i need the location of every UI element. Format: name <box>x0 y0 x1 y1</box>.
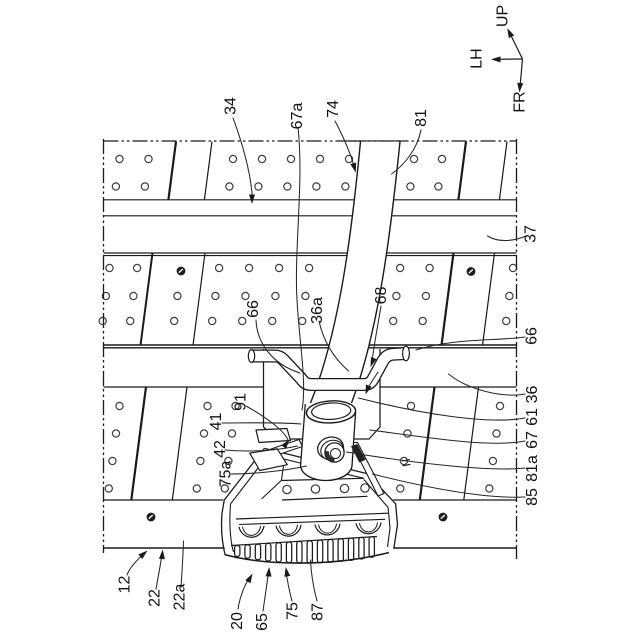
svg-text:75a: 75a <box>218 461 235 488</box>
svg-text:22a: 22a <box>172 584 189 611</box>
svg-text:87: 87 <box>310 603 327 621</box>
svg-text:66: 66 <box>524 327 541 345</box>
svg-text:UP: UP <box>495 5 512 27</box>
svg-text:65: 65 <box>254 613 271 631</box>
svg-text:81a: 81a <box>524 455 541 482</box>
svg-text:FR: FR <box>512 91 529 112</box>
svg-text:20: 20 <box>229 612 246 630</box>
svg-text:67a: 67a <box>289 103 306 130</box>
svg-text:67: 67 <box>524 431 541 449</box>
svg-text:42: 42 <box>212 440 229 458</box>
svg-text:36a: 36a <box>309 297 326 324</box>
svg-text:68: 68 <box>373 287 390 305</box>
svg-text:36: 36 <box>524 386 541 404</box>
svg-text:22: 22 <box>147 589 164 607</box>
svg-text:41: 41 <box>208 413 225 431</box>
svg-text:81: 81 <box>413 109 430 127</box>
svg-text:34: 34 <box>223 97 240 115</box>
svg-text:37: 37 <box>523 225 540 243</box>
svg-text:LH: LH <box>469 48 486 68</box>
svg-text:91: 91 <box>233 393 250 411</box>
svg-text:12: 12 <box>117 576 134 594</box>
svg-text:85: 85 <box>524 488 541 506</box>
svg-text:75: 75 <box>285 602 302 620</box>
svg-text:66: 66 <box>245 300 262 318</box>
svg-text:74: 74 <box>325 100 342 118</box>
svg-text:61: 61 <box>524 408 541 426</box>
